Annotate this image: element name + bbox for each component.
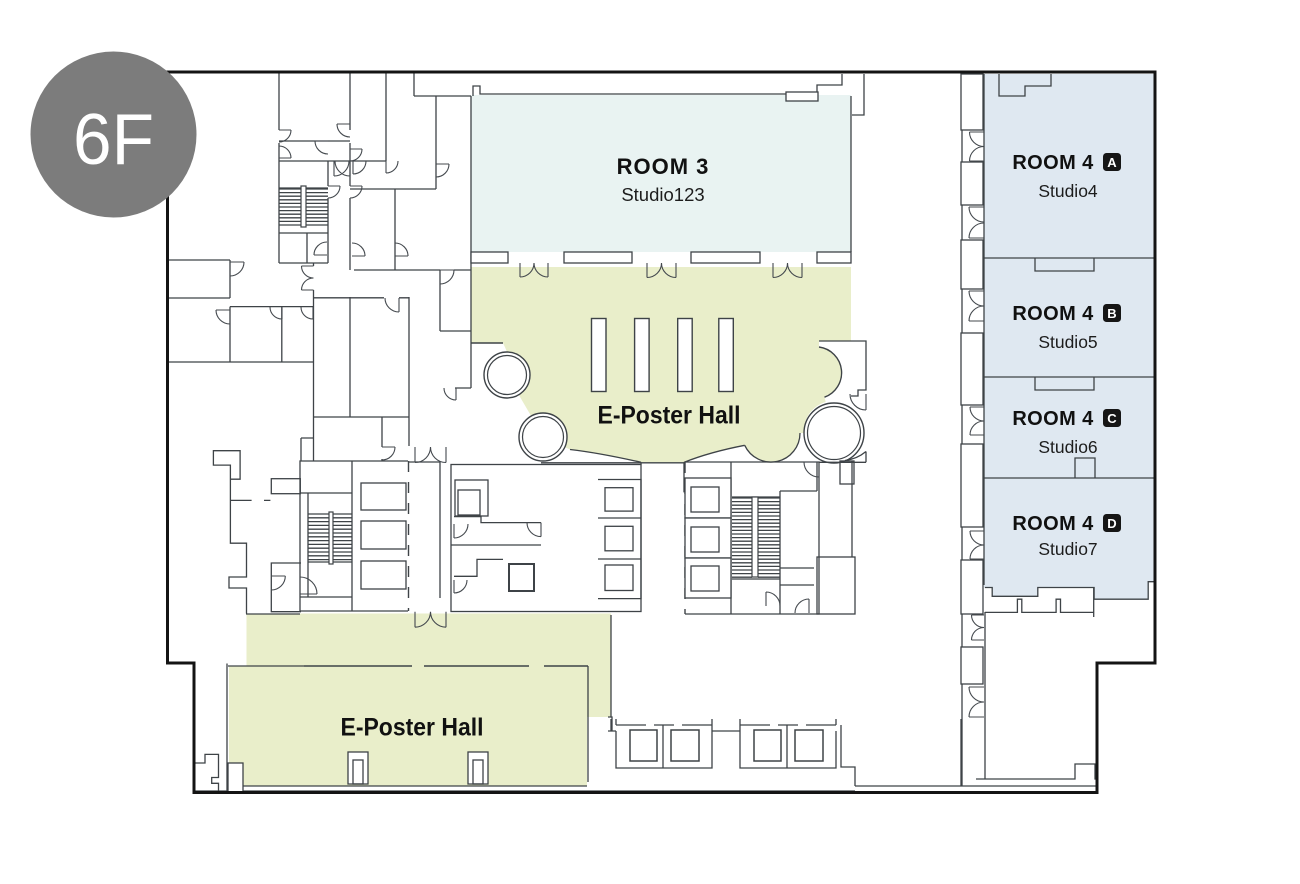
- svg-text:Studio5: Studio5: [1038, 332, 1097, 352]
- svg-text:A: A: [1107, 155, 1117, 170]
- svg-text:Studio6: Studio6: [1038, 437, 1097, 457]
- svg-text:6F: 6F: [73, 100, 154, 180]
- svg-text:ROOM 4: ROOM 4: [1012, 303, 1094, 325]
- svg-text:Studio7: Studio7: [1038, 539, 1097, 559]
- svg-text:E-Poster Hall: E-Poster Hall: [598, 402, 741, 430]
- svg-text:ROOM 4: ROOM 4: [1012, 513, 1094, 535]
- svg-text:C: C: [1107, 411, 1117, 426]
- svg-text:ROOM 3: ROOM 3: [617, 154, 710, 179]
- svg-text:E-Poster Hall: E-Poster Hall: [341, 714, 484, 742]
- svg-text:ROOM 4: ROOM 4: [1012, 408, 1094, 430]
- svg-text:ROOM 4: ROOM 4: [1012, 152, 1094, 174]
- svg-text:B: B: [1107, 306, 1116, 321]
- svg-text:D: D: [1107, 516, 1116, 531]
- svg-text:Studio4: Studio4: [1038, 181, 1098, 201]
- svg-text:Studio123: Studio123: [621, 184, 704, 205]
